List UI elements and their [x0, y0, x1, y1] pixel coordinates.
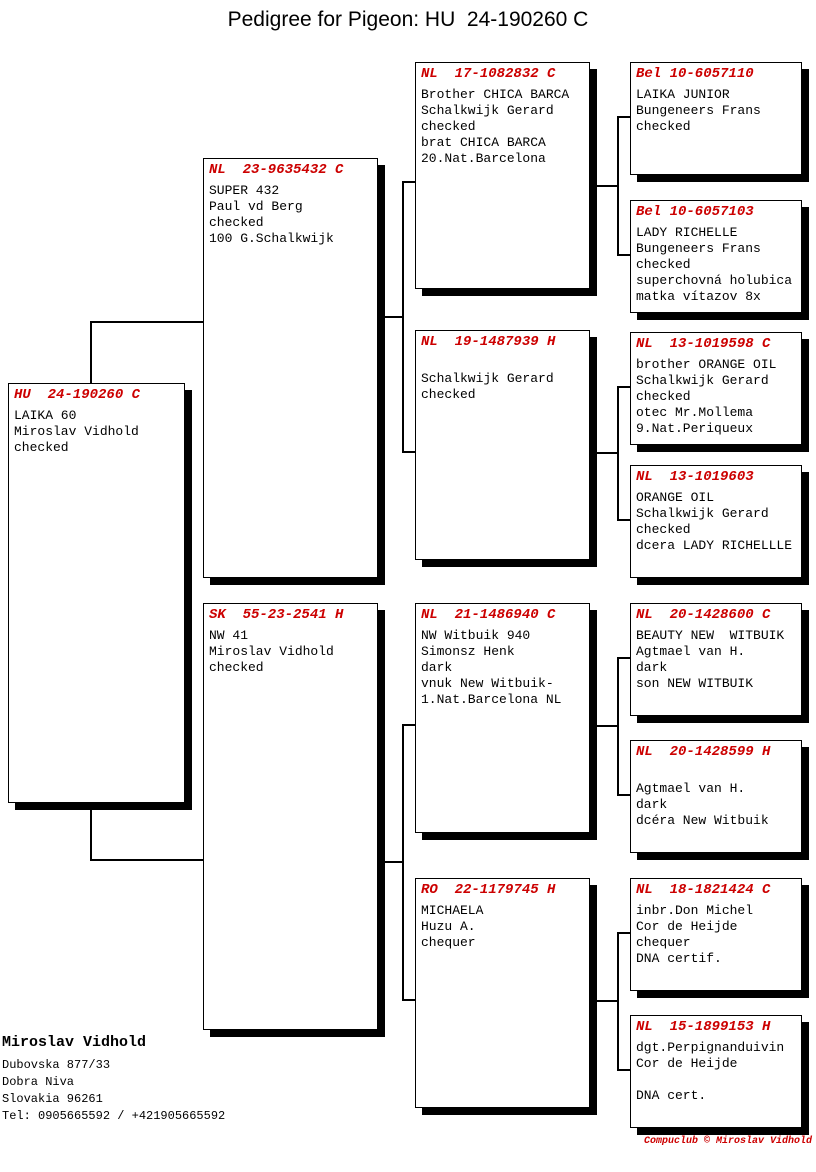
- ring-number: NL 20-1428599 H: [636, 743, 796, 762]
- connector-line: [378, 861, 404, 863]
- ring-number: Bel 10-6057110: [636, 65, 796, 84]
- ring-number: NL 20-1428600 C: [636, 606, 796, 625]
- connector-line: [617, 386, 619, 521]
- box-sire-sire-dam: Bel 10-6057103 LADY RICHELLE Bungeneers …: [630, 200, 802, 313]
- connector-line: [402, 724, 404, 1001]
- pigeon-details: NW Witbuik 940 Simonsz Henk dark vnuk Ne…: [421, 628, 584, 708]
- box-dam-dam: RO 22-1179745 H MICHAELA Huzu A. chequer: [415, 878, 590, 1108]
- connector-line: [90, 859, 204, 861]
- box-sire-dam: NL 19-1487939 H Schalkwijk Gerard checke…: [415, 330, 590, 560]
- ring-number: HU 24-190260 C: [14, 386, 179, 405]
- connector-line: [90, 801, 92, 861]
- pigeon-details: MICHAELA Huzu A. chequer: [421, 903, 584, 951]
- page-title: Pedigree for Pigeon: HU 24-190260 C: [0, 8, 816, 32]
- connector-line: [590, 452, 619, 454]
- ring-number: SK 55-23-2541 H: [209, 606, 372, 625]
- pigeon-details: brother ORANGE OIL Schalkwijk Gerard che…: [636, 357, 796, 437]
- ring-number: NL 15-1899153 H: [636, 1018, 796, 1037]
- connector-line: [90, 321, 92, 385]
- box-sire-sire: NL 17-1082832 C Brother CHICA BARCA Scha…: [415, 62, 590, 289]
- box-dam-sire-dam: NL 20-1428599 H Agtmael van H. dark dcér…: [630, 740, 802, 853]
- connector-line: [617, 116, 619, 256]
- ring-number: NL 17-1082832 C: [421, 65, 584, 84]
- connector-line: [402, 181, 404, 453]
- pigeon-details: LAIKA JUNIOR Bungeneers Frans checked: [636, 87, 796, 135]
- pigeon-details: SUPER 432 Paul vd Berg checked 100 G.Sch…: [209, 183, 372, 247]
- pedigree-page: Pedigree for Pigeon: HU 24-190260 C HU 2…: [0, 0, 816, 1172]
- pigeon-details: NW 41 Miroslav Vidhold checked: [209, 628, 372, 676]
- pigeon-details: Agtmael van H. dark dcéra New Witbuik: [636, 765, 796, 829]
- connector-line: [90, 321, 204, 323]
- pigeon-details: ORANGE OIL Schalkwijk Gerard checked dce…: [636, 490, 796, 554]
- ring-number: NL 13-1019603: [636, 468, 796, 487]
- owner-name: Miroslav Vidhold: [2, 1034, 146, 1051]
- connector-line: [590, 725, 619, 727]
- pigeon-details: BEAUTY NEW WITBUIK Agtmael van H. dark s…: [636, 628, 796, 692]
- box-dam-dam-sire: NL 18-1821424 C inbr.Don Michel Cor de H…: [630, 878, 802, 991]
- ring-number: NL 19-1487939 H: [421, 333, 584, 352]
- box-sire-dam-dam: NL 13-1019603 ORANGE OIL Schalkwijk Gera…: [630, 465, 802, 578]
- box-dam: SK 55-23-2541 H NW 41 Miroslav Vidhold c…: [203, 603, 378, 1030]
- pigeon-details: Schalkwijk Gerard checked: [421, 355, 584, 403]
- pigeon-details: Brother CHICA BARCA Schalkwijk Gerard ch…: [421, 87, 584, 167]
- software-credit: Compuclub © Miroslav Vidhold: [644, 1136, 812, 1147]
- box-subject: HU 24-190260 C LAIKA 60 Miroslav Vidhold…: [8, 383, 185, 803]
- box-dam-sire-sire: NL 20-1428600 C BEAUTY NEW WITBUIK Agtma…: [630, 603, 802, 716]
- owner-address: Dubovska 877/33 Dobra Niva Slovakia 9626…: [2, 1057, 225, 1125]
- ring-number: RO 22-1179745 H: [421, 881, 584, 900]
- box-sire-dam-sire: NL 13-1019598 C brother ORANGE OIL Schal…: [630, 332, 802, 445]
- box-dam-dam-dam: NL 15-1899153 H dgt.Perpignanduivin Cor …: [630, 1015, 802, 1128]
- pigeon-details: inbr.Don Michel Cor de Heijde chequer DN…: [636, 903, 796, 967]
- connector-line: [378, 316, 404, 318]
- pigeon-details: LAIKA 60 Miroslav Vidhold checked: [14, 408, 179, 456]
- connector-line: [617, 657, 619, 796]
- connector-line: [590, 185, 619, 187]
- box-sire: NL 23-9635432 C SUPER 432 Paul vd Berg c…: [203, 158, 378, 578]
- ring-number: NL 23-9635432 C: [209, 161, 372, 180]
- ring-number: NL 21-1486940 C: [421, 606, 584, 625]
- ring-number: NL 18-1821424 C: [636, 881, 796, 900]
- connector-line: [590, 1000, 619, 1002]
- box-sire-sire-sire: Bel 10-6057110 LAIKA JUNIOR Bungeneers F…: [630, 62, 802, 175]
- connector-line: [617, 932, 619, 1071]
- ring-number: Bel 10-6057103: [636, 203, 796, 222]
- pigeon-details: dgt.Perpignanduivin Cor de Heijde DNA ce…: [636, 1040, 796, 1104]
- box-dam-sire: NL 21-1486940 C NW Witbuik 940 Simonsz H…: [415, 603, 590, 833]
- pigeon-details: LADY RICHELLE Bungeneers Frans checked s…: [636, 225, 796, 305]
- ring-number: NL 13-1019598 C: [636, 335, 796, 354]
